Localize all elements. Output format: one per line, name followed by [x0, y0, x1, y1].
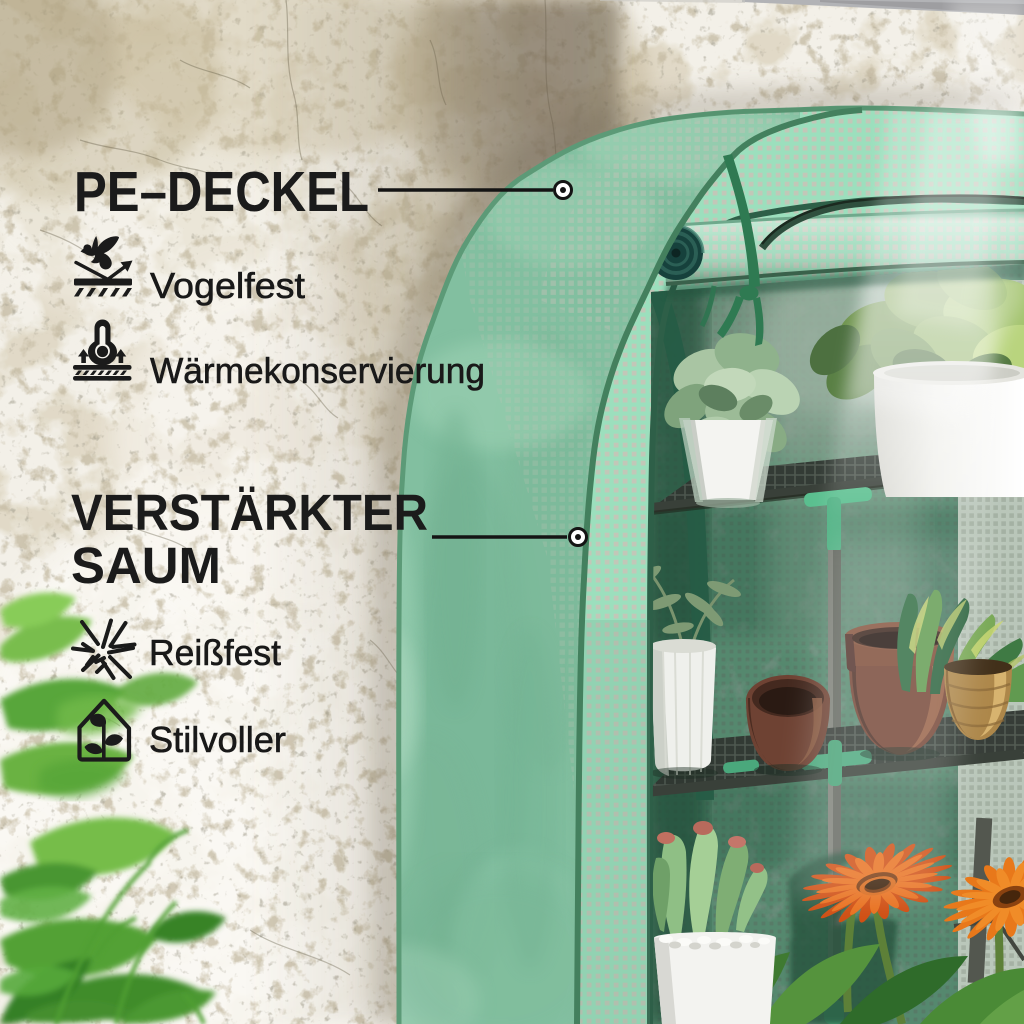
svg-text:Reißfest: Reißfest — [149, 632, 281, 673]
svg-text:PE–DECKEL: PE–DECKEL — [74, 160, 369, 224]
svg-text:VERSTÄRKTER: VERSTÄRKTER — [71, 484, 428, 541]
svg-text:SAUM: SAUM — [71, 537, 221, 594]
svg-text:Vogelfest: Vogelfest — [150, 265, 305, 306]
svg-text:Stilvoller: Stilvoller — [149, 719, 286, 760]
svg-text:Wärmekonservierung: Wärmekonservierung — [150, 350, 485, 391]
